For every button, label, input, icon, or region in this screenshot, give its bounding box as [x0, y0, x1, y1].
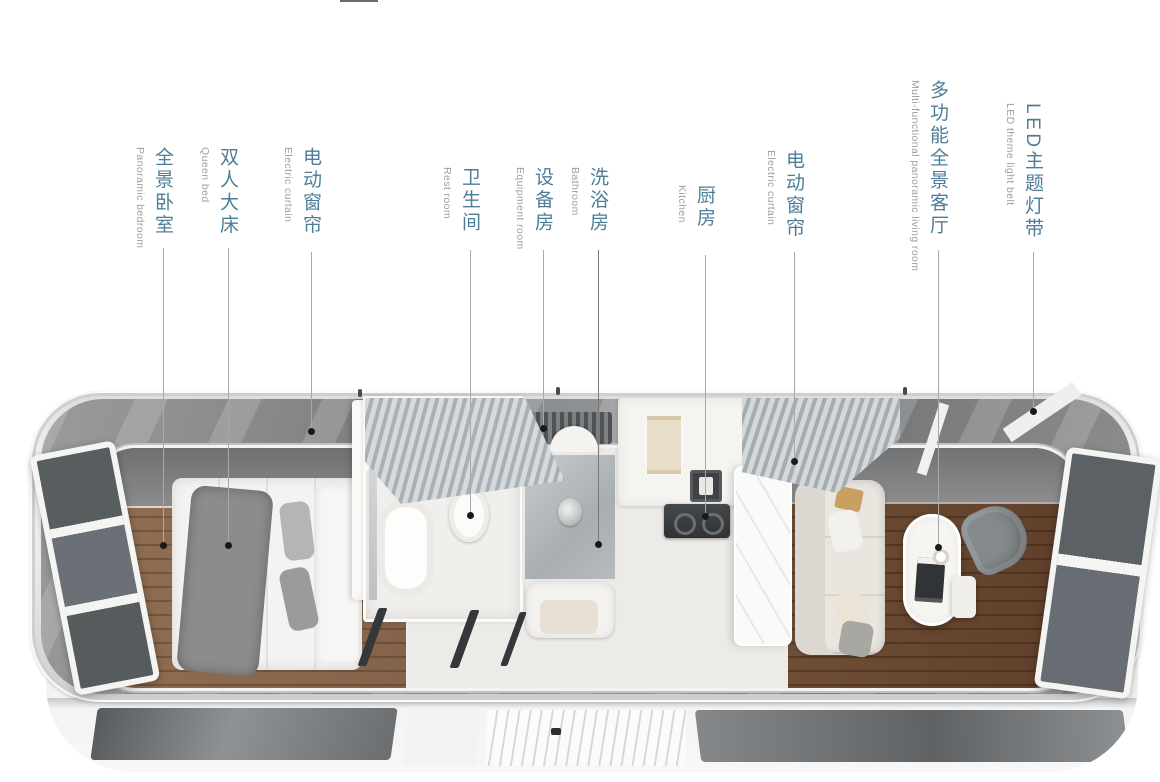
leader-line-kitchen [705, 255, 706, 516]
label-en-living-room: Multi-functional panoramic living room [909, 80, 921, 271]
leader-line-led-light-belt [1033, 252, 1034, 411]
leader-dot-bathroom [595, 541, 602, 548]
bench-cushion [540, 600, 598, 634]
infographic-canvas: Panoramic bedroom 全景卧室 Queen bed 双人大床 El… [0, 0, 1160, 782]
bottom-wall-panel [403, 708, 481, 764]
label-cn-electric-curtain-right: 电动窗帘 [782, 150, 804, 240]
leader-dot-led-light-belt [1030, 408, 1037, 415]
label-en-led-light-belt: LED theme light belt [1004, 103, 1016, 240]
label-living-room: Multi-functional panoramic living room 多… [909, 80, 948, 271]
coffee-table-plate [933, 549, 949, 565]
leader-dot-rest-room [467, 512, 474, 519]
rim-seam-tick-1 [358, 389, 362, 397]
label-en-bathroom: Bathroom [569, 167, 581, 235]
label-en-panoramic-bedroom: Panoramic bedroom [134, 147, 146, 248]
label-kitchen: Kitchen 厨房 [676, 185, 715, 230]
kitchen-stove [664, 504, 730, 538]
leader-line-queen-bed [228, 248, 229, 545]
bottom-wall-glass-left [90, 708, 397, 760]
gray-blanket [176, 485, 274, 677]
label-cn-equipment-room: 设备房 [531, 167, 553, 250]
label-cn-kitchen: 厨房 [693, 185, 715, 230]
label-electric-curtain-right: Electric curtain 电动窗帘 [765, 150, 804, 240]
leader-line-equipment-room [543, 250, 544, 428]
bottom-wall-glass-right [695, 710, 1129, 762]
kitchen-open-shelf [645, 414, 683, 476]
leader-dot-electric-curtain-right [791, 458, 798, 465]
label-electric-curtain-left: Electric curtain 电动窗帘 [282, 147, 321, 237]
kitchen-marble-counter [734, 466, 792, 646]
bottom-wall-door-handle [551, 728, 561, 735]
leader-line-electric-curtain-left [311, 252, 312, 431]
label-en-electric-curtain-left: Electric curtain [282, 147, 294, 237]
leader-line-living-room [938, 250, 939, 547]
label-en-queen-bed: Queen bed [199, 147, 211, 237]
side-stool [952, 576, 976, 618]
sofa-pillow-gray [837, 619, 874, 658]
label-rest-room: Rest room 卫生间 [441, 167, 480, 235]
bottom-wall-slat-panel [485, 710, 688, 766]
leader-dot-living-room [935, 544, 942, 551]
top-edge-artifact [340, 0, 378, 2]
label-en-electric-curtain-right: Electric curtain [765, 150, 777, 240]
leader-line-panoramic-bedroom [163, 248, 164, 545]
rim-seam-tick-2 [556, 387, 560, 395]
label-equipment-room: Equipment room 设备房 [514, 167, 553, 250]
leader-dot-equipment-room [540, 425, 547, 432]
leader-dot-kitchen [702, 513, 709, 520]
stove-burner-1 [674, 513, 696, 535]
leader-line-electric-curtain-right [794, 252, 795, 461]
leader-line-rest-room [470, 250, 471, 515]
kitchen-sink-unit [690, 470, 722, 502]
label-en-rest-room: Rest room [441, 167, 453, 235]
label-cn-led-light-belt: LED主题灯带 [1021, 103, 1043, 240]
leader-dot-panoramic-bedroom [160, 542, 167, 549]
label-cn-bathroom: 洗浴房 [586, 167, 608, 235]
label-cn-panoramic-bedroom: 全景卧室 [151, 147, 173, 248]
leader-line-bathroom [598, 250, 599, 544]
label-queen-bed: Queen bed 双人大床 [199, 147, 238, 237]
leader-dot-queen-bed [225, 542, 232, 549]
label-cn-queen-bed: 双人大床 [216, 147, 238, 237]
label-en-kitchen: Kitchen [676, 185, 688, 230]
rim-seam-tick-3 [903, 387, 907, 395]
shower-fixture [558, 498, 582, 526]
bathtub [378, 500, 434, 596]
label-cn-living-room: 多功能全景客厅 [926, 80, 948, 271]
label-bathroom: Bathroom 洗浴房 [569, 167, 608, 235]
label-panoramic-bedroom: Panoramic bedroom 全景卧室 [134, 147, 173, 248]
label-cn-rest-room: 卫生间 [458, 167, 480, 235]
label-en-equipment-room: Equipment room [514, 167, 526, 250]
leader-dot-electric-curtain-left [308, 428, 315, 435]
label-cn-electric-curtain-left: 电动窗帘 [299, 147, 321, 237]
label-led-light-belt: LED theme light belt LED主题灯带 [1004, 103, 1043, 240]
